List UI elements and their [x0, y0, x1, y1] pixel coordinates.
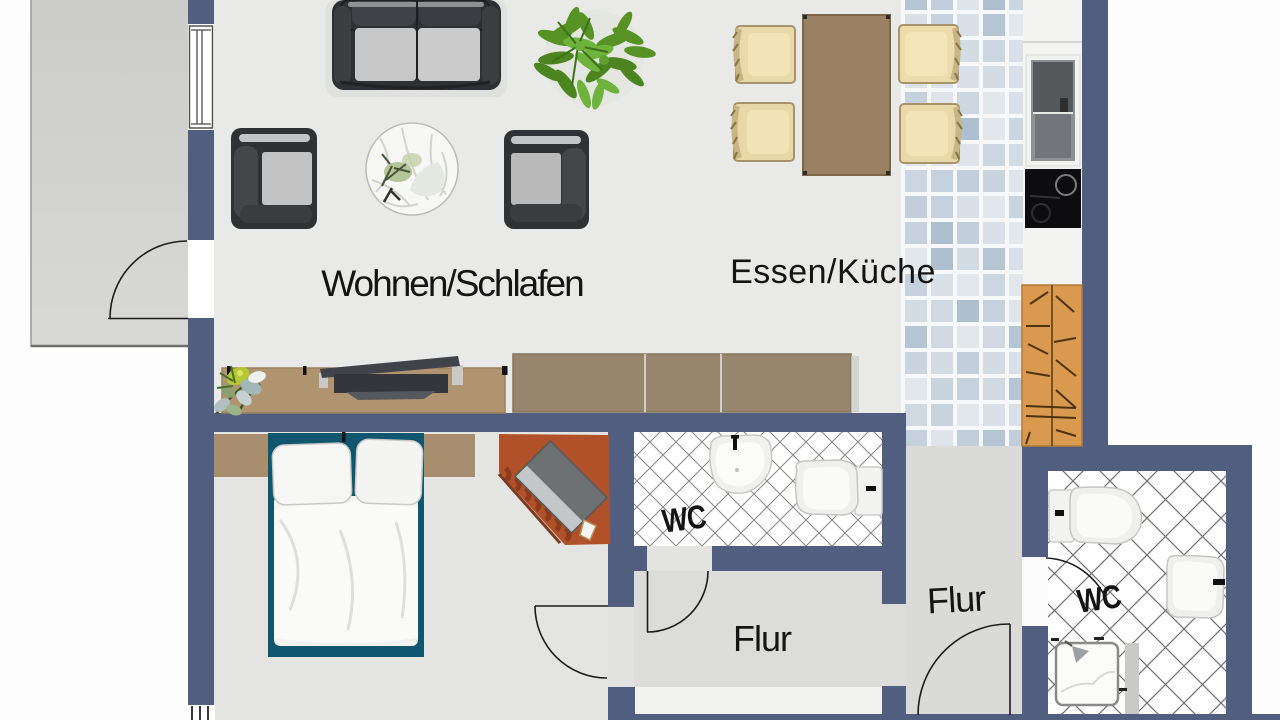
- svg-text:WC: WC: [660, 499, 708, 540]
- svg-text:Essen/Küche: Essen/Küche: [730, 253, 936, 291]
- svg-text:Flur: Flur: [926, 577, 987, 621]
- svg-text:Flur: Flur: [733, 618, 792, 659]
- svg-text:WC: WC: [1075, 579, 1123, 621]
- svg-text:Wohnen/Schlafen: Wohnen/Schlafen: [321, 263, 583, 304]
